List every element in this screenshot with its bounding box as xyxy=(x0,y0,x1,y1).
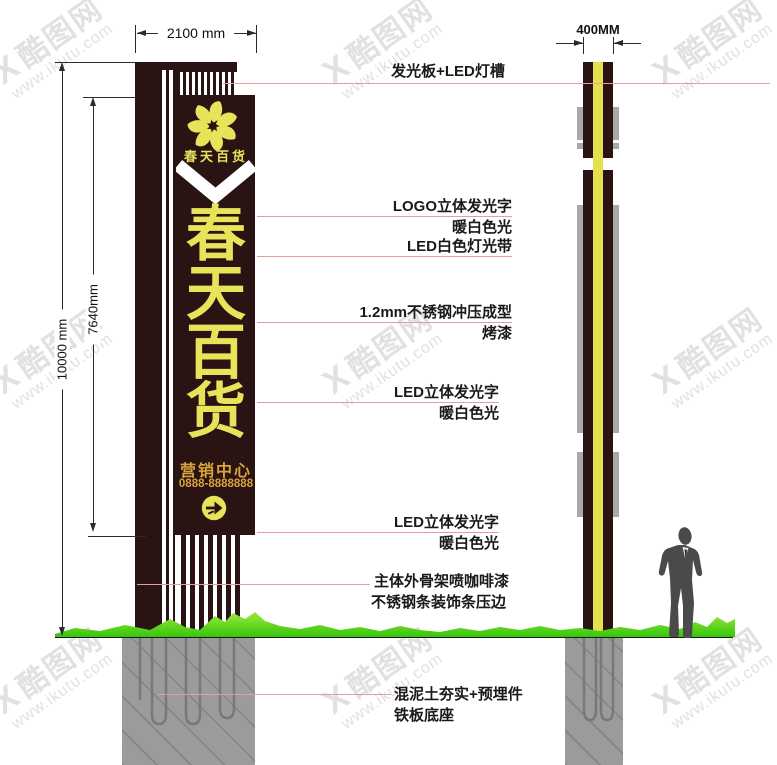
callout-label: 主体外骨架喷咖啡漆 xyxy=(374,573,509,590)
sign-name-vertical: 春 天 百 货 xyxy=(177,206,255,442)
watermark: X酷图网www.ikutu.com xyxy=(609,275,777,475)
scale-person-silhouette xyxy=(654,527,712,640)
callout-sublabel: 不锈钢条装饰条压边 xyxy=(371,594,506,611)
dim-arrow-icon xyxy=(614,40,623,46)
side-led-stripe xyxy=(593,62,603,637)
total-height-label: 10000 mm xyxy=(55,310,70,390)
callout-label: LED立体发光字 xyxy=(299,514,499,531)
flower-logo-icon xyxy=(186,100,240,152)
dim-tick xyxy=(88,536,146,537)
side-width-label: 400MM xyxy=(560,22,636,37)
side-gray-strip xyxy=(613,205,619,433)
callout-sublabel: 暖白色光 xyxy=(312,219,512,236)
callout-sublabel: 铁板底座 xyxy=(394,707,454,724)
anchor-bolts-icon xyxy=(565,638,623,765)
side-panel-bar xyxy=(603,170,613,637)
dim-arrow-icon xyxy=(59,62,65,71)
callout-sublabel: 暖白色光 xyxy=(299,405,499,422)
side-panel-bar xyxy=(583,170,593,637)
callout-line xyxy=(257,256,512,257)
dim-arrow-icon xyxy=(90,97,96,106)
side-panel-bar xyxy=(603,62,613,158)
callout-line xyxy=(158,694,391,695)
callout-line xyxy=(257,322,512,323)
dim-arrow-icon xyxy=(59,627,65,636)
callout-line xyxy=(137,584,370,585)
side-panel-bar xyxy=(583,62,593,158)
callout-label: 混泥土夯实+预埋件 xyxy=(394,686,523,703)
side-gray-strip xyxy=(613,143,619,149)
left-pinstripes xyxy=(159,70,175,632)
callout-line xyxy=(223,83,770,84)
callout-sublabel: 暖白色光 xyxy=(299,535,499,552)
callout-line xyxy=(257,216,512,217)
dim-tick xyxy=(135,25,136,53)
sign-char: 天 xyxy=(177,265,255,324)
callout-label: 发光板+LED灯槽 xyxy=(390,63,506,80)
callout-label: LOGO立体发光字 xyxy=(312,198,512,215)
anchor-bolts-icon xyxy=(122,638,255,765)
sign-char: 春 xyxy=(177,206,255,265)
front-foundation-block xyxy=(122,638,255,765)
callout-label: LED立体发光字 xyxy=(299,384,499,401)
front-width-label: 2100 mm xyxy=(158,25,234,41)
direction-arrow-icon xyxy=(201,495,227,521)
sign-char: 百 xyxy=(177,324,255,383)
side-gray-strip xyxy=(613,452,619,517)
dim-arrow-icon xyxy=(137,30,146,36)
chevron-divider-icon xyxy=(176,158,255,204)
dim-arrow-icon xyxy=(247,30,256,36)
callout-line xyxy=(257,402,499,403)
phone-number: 0888-8888888 xyxy=(177,478,255,490)
callout-sublabel: 烤漆 xyxy=(312,325,512,342)
callout-label: 1.2mm不锈钢冲压成型 xyxy=(312,304,512,321)
dim-tick xyxy=(256,25,257,53)
side-gray-strip xyxy=(613,107,619,140)
panel-height-label: 7640mm xyxy=(86,275,101,345)
callout-label: LED白色灯光带 xyxy=(312,238,512,255)
callout-line xyxy=(257,532,499,533)
side-foundation-block xyxy=(565,638,623,765)
signage-design-sheet: X酷图网www.ikutu.com X酷图网www.ikutu.com X酷图网… xyxy=(0,0,777,765)
dim-arrow-icon xyxy=(90,523,96,532)
dim-arrow-icon xyxy=(574,40,583,46)
dim-tick xyxy=(55,62,135,63)
sign-char: 货 xyxy=(177,383,255,442)
